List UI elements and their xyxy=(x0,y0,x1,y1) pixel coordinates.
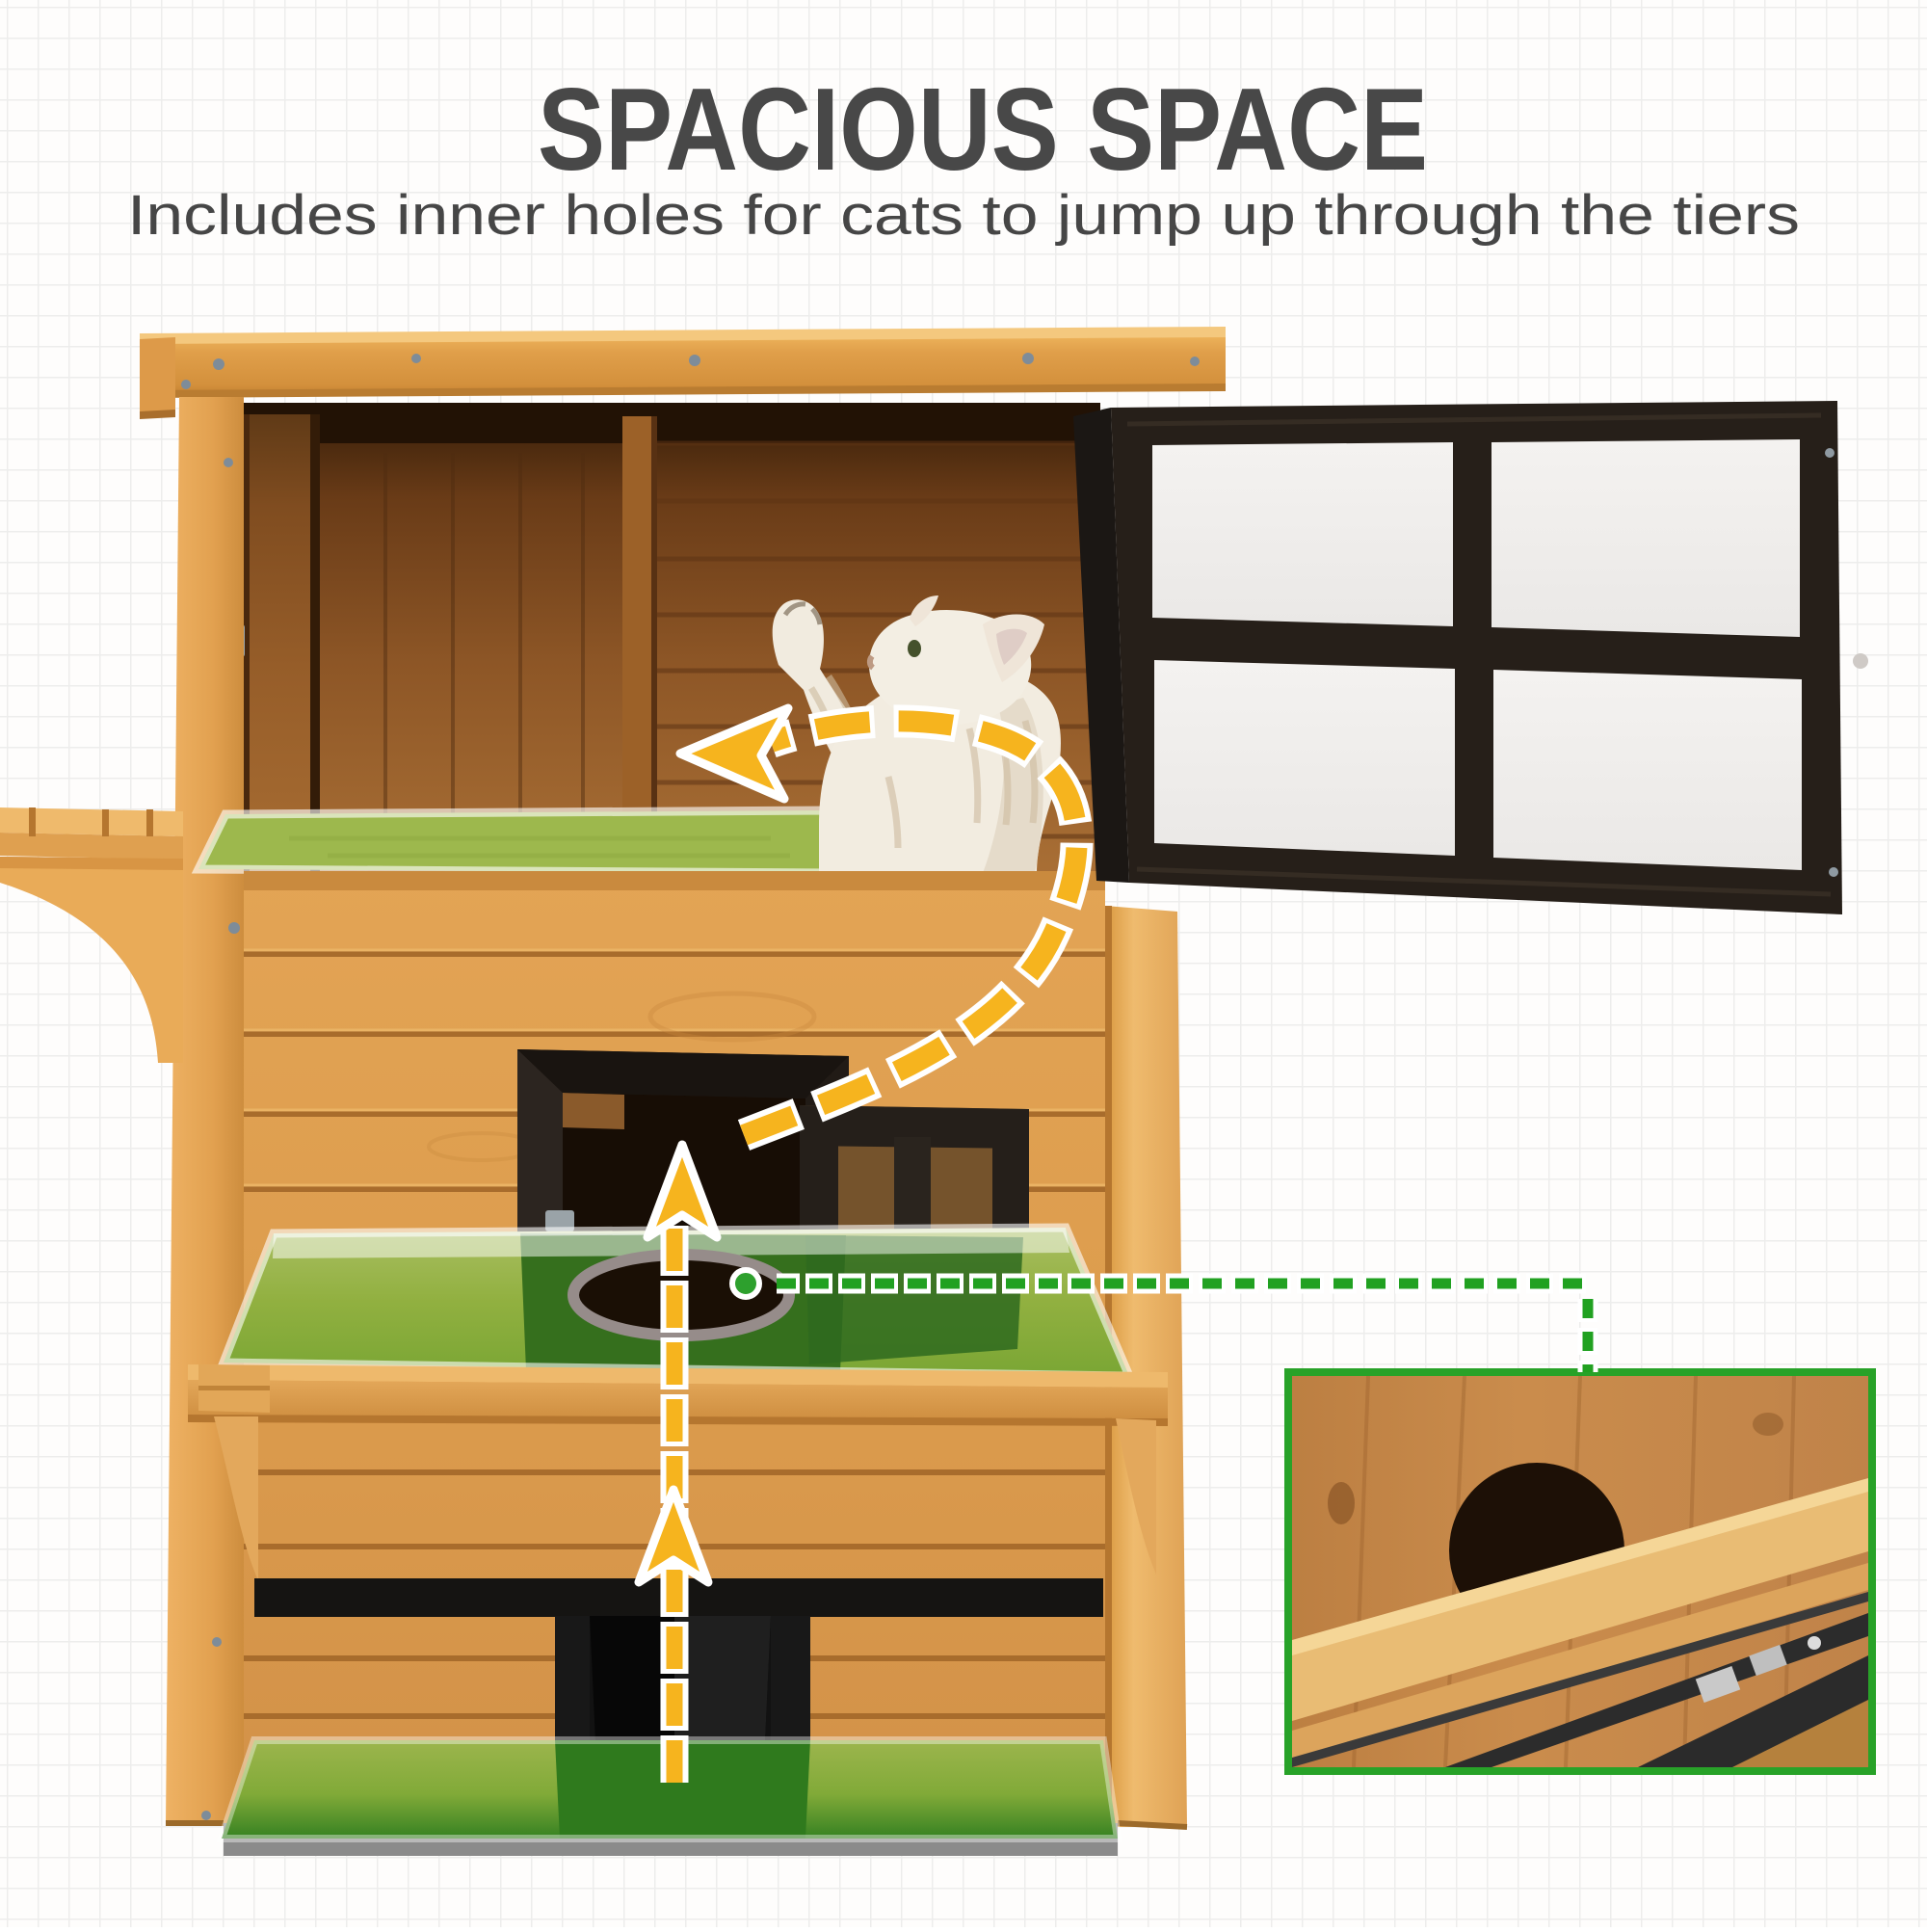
svg-text:Includes inner holes for cats: Includes inner holes for cats to jump up… xyxy=(127,184,1800,247)
svg-text:SPACIOUS SPACE: SPACIOUS SPACE xyxy=(538,64,1428,195)
